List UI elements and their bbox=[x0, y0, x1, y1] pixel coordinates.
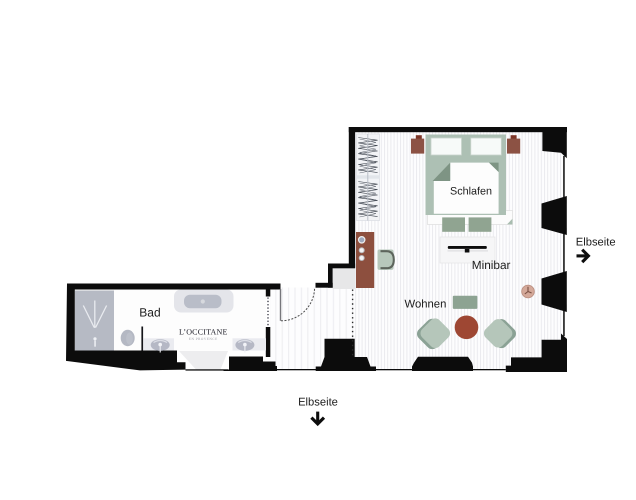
svg-text:Minibar: Minibar bbox=[472, 258, 511, 272]
svg-text:Elbseite: Elbseite bbox=[576, 237, 616, 249]
svg-text:Elbseite: Elbseite bbox=[298, 397, 338, 409]
svg-text:Wohnen: Wohnen bbox=[405, 299, 447, 311]
svg-text:EN PROVENCE: EN PROVENCE bbox=[189, 337, 218, 341]
svg-text:L’OCCITANE: L’OCCITANE bbox=[179, 328, 228, 337]
svg-text:Bad: Bad bbox=[139, 306, 160, 320]
svg-text:Schlafen: Schlafen bbox=[450, 186, 492, 198]
